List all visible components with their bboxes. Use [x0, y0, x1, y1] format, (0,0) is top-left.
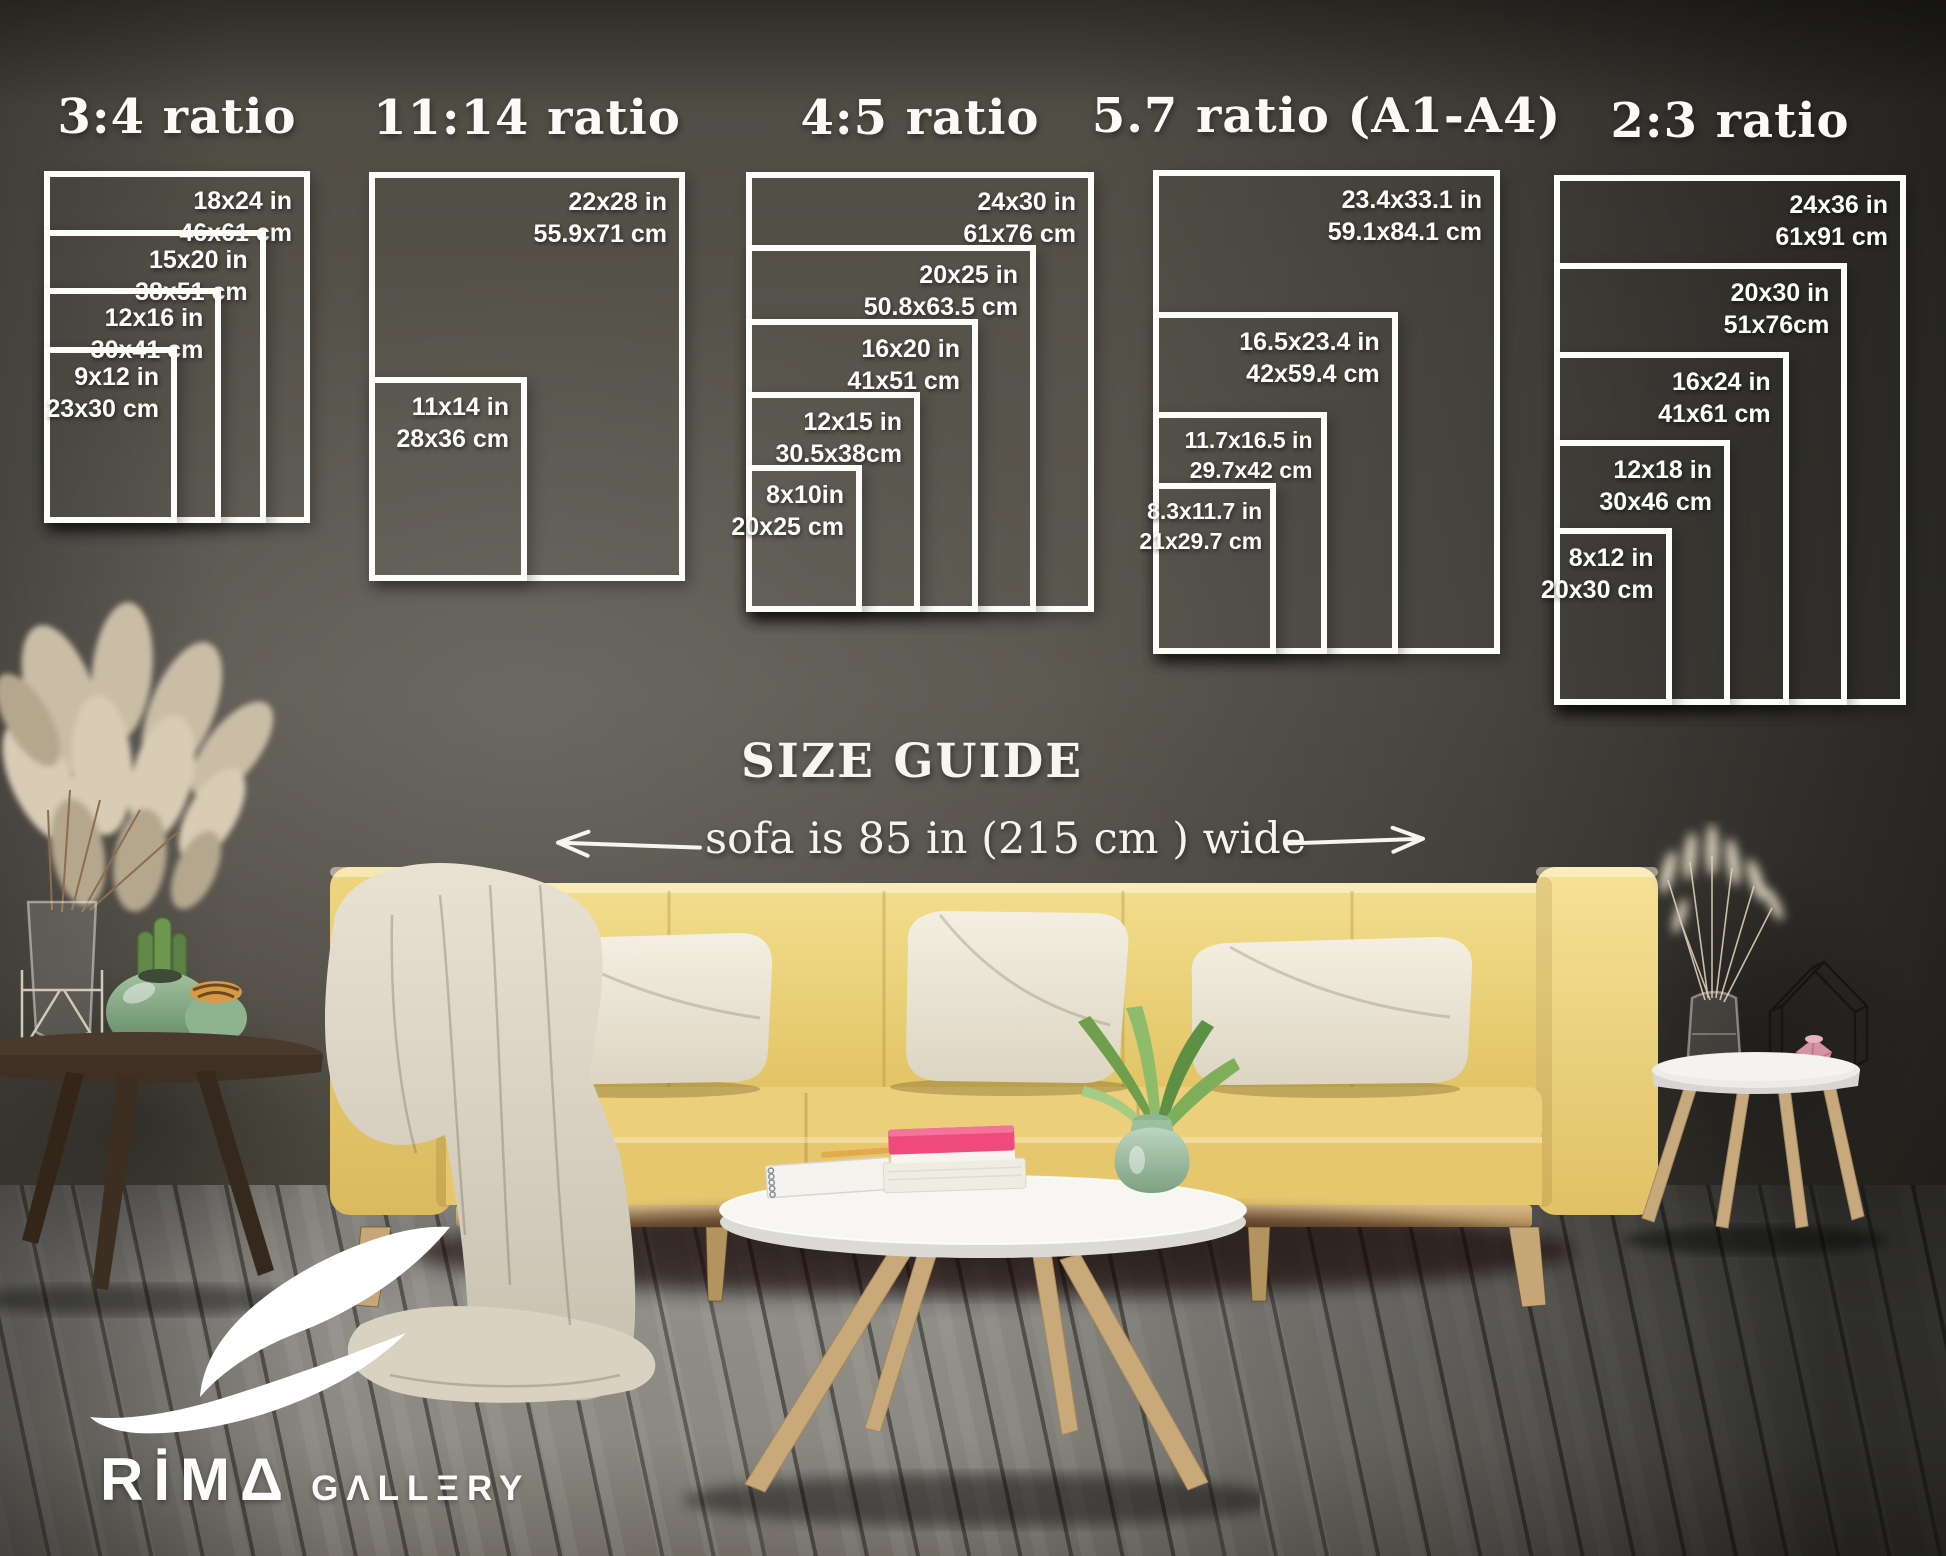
size-label: 20x25 in50.8x63.5 cm	[864, 259, 1018, 323]
coffee-table-legs	[745, 1246, 1208, 1492]
table-floor-shadow	[1623, 1226, 1887, 1254]
size-label: 8x10in20x25 cm	[731, 479, 844, 543]
size-guide-poster: 3:4 ratio 18x24 in46x61 cm 15x20 in38x51…	[0, 0, 1946, 1556]
size-label: 8.3x11.7 in21x29.7 cm	[1139, 497, 1262, 556]
ratio-title: 4:5 ratio	[800, 90, 1039, 146]
left-arrow-icon	[547, 825, 703, 864]
size-box-8x10: 8x10in20x25 cm	[746, 465, 862, 612]
size-label: 9x12 in23x30 cm	[46, 361, 159, 425]
ratio-group-5-7: 5.7 ratio (A1-A4) 23.4x33.1 in59.1x84.1 …	[1153, 170, 1500, 654]
page-title: SIZE GUIDE	[612, 734, 1212, 789]
notebook	[765, 1147, 900, 1198]
size-label: 11x14 in28x36 cm	[396, 391, 509, 455]
white-round-table	[1642, 1052, 1864, 1228]
size-label: 23.4x33.1 in59.1x84.1 cm	[1328, 184, 1482, 248]
size-label: 16x24 in41x61 cm	[1658, 366, 1771, 430]
size-label: 8x12 in20x30 cm	[1541, 542, 1654, 606]
ratio-title: 5.7 ratio (A1-A4)	[1092, 88, 1561, 144]
glass-vase	[28, 902, 96, 1040]
size-label: 24x36 in61x91 cm	[1775, 189, 1888, 253]
ratio-title: 11:14 ratio	[373, 90, 681, 146]
ratio-group-4-5: 4:5 ratio 24x30 in61x76 cm 20x25 in50.8x…	[746, 172, 1094, 612]
ratio-title: 3:4 ratio	[57, 89, 296, 145]
right-arrow-icon	[1282, 821, 1433, 860]
brand-name: RİMΔ	[100, 1445, 293, 1514]
sofa-width-note: sofa is 85 in (215 cm ) wide	[705, 814, 1306, 864]
size-label: 24x30 in61x76 cm	[963, 186, 1076, 250]
size-box-a4: 8.3x11.7 in21x29.7 cm	[1153, 483, 1276, 654]
size-box-9x12: 9x12 in23x30 cm	[44, 347, 177, 523]
green-vase-plant	[1078, 1006, 1240, 1193]
coffee-table-scene	[560, 1000, 1260, 1556]
brand-logo: RİMΔ GΛLLΞRY	[62, 1203, 562, 1533]
size-label: 16x20 in41x51 cm	[847, 333, 960, 397]
size-label: 16.5x23.4 in42x59.4 cm	[1239, 326, 1379, 390]
size-label: 12x15 in30.5x38cm	[775, 406, 902, 470]
ratio-group-11-14: 11:14 ratio 22x28 in55.9x71 cm 11x14 in2…	[369, 172, 685, 581]
brand-suffix: GΛLLΞRY	[311, 1469, 530, 1509]
logo-text: RİMΔ GΛLLΞRY	[100, 1445, 530, 1514]
size-label: 22x28 in55.9x71 cm	[534, 186, 667, 250]
pencil	[821, 1147, 889, 1158]
size-box-8x12: 8x12 in20x30 cm	[1554, 528, 1672, 705]
size-label: 11.7x16.5 in29.7x42 cm	[1185, 426, 1313, 485]
right-side-table-scene	[1620, 820, 1946, 1300]
ratio-group-2-3: 2:3 ratio 24x36 in61x91 cm 20x30 in51x76…	[1554, 175, 1906, 705]
ratio-group-3-4: 3:4 ratio 18x24 in46x61 cm 15x20 in38x51…	[44, 171, 310, 523]
ratio-title: 2:3 ratio	[1610, 93, 1849, 149]
book-stack	[882, 1125, 1026, 1193]
size-box-11x14: 11x14 in28x36 cm	[369, 377, 527, 582]
logo-swoosh-icon	[62, 1203, 492, 1443]
size-label: 20x30 in51x76cm	[1724, 277, 1830, 341]
size-label: 12x18 in30x46 cm	[1599, 454, 1712, 518]
